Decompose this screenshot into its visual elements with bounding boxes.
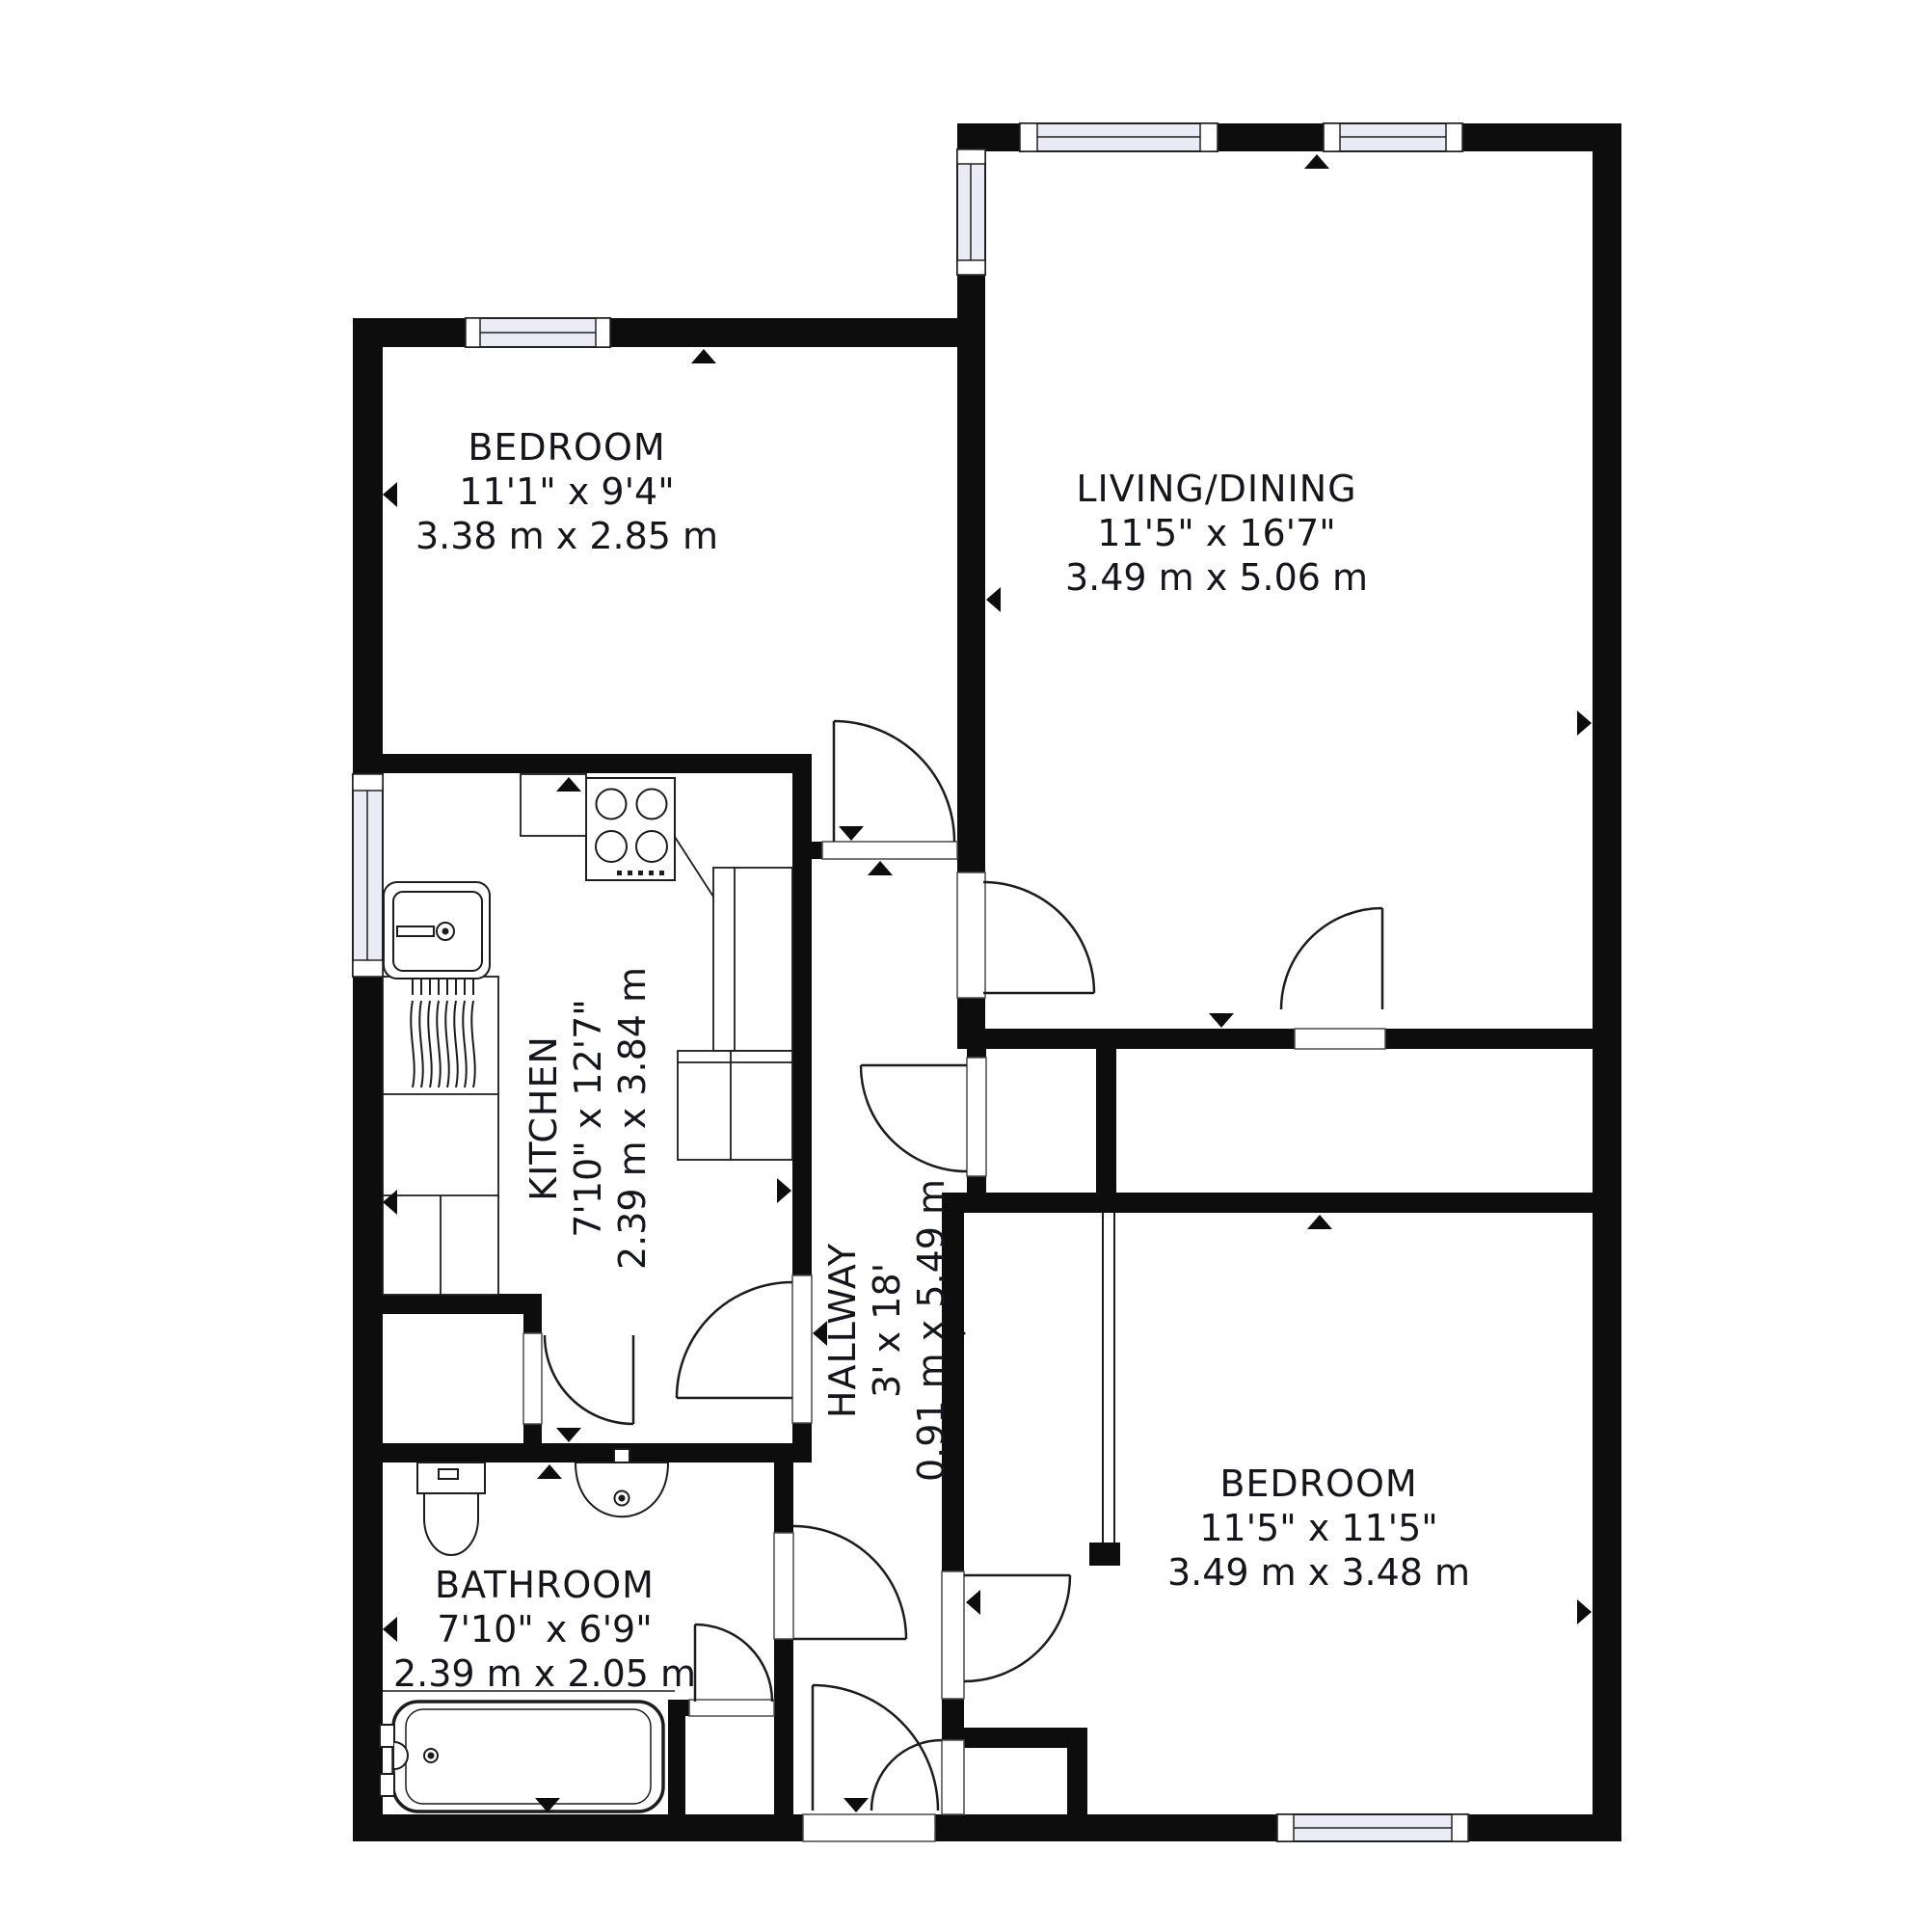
door-hall-storage-icon xyxy=(871,1740,942,1811)
door-hall-closet-icon xyxy=(861,1065,967,1171)
wall-bedroom2-top xyxy=(942,1193,1593,1213)
room-name: KITCHEN xyxy=(522,967,566,1270)
door-living-icon xyxy=(983,882,1094,993)
marker-left-icon xyxy=(966,1590,980,1615)
room-size-imperial: 11'1" x 9'4" xyxy=(415,470,718,514)
room-size-imperial: 7'10" x 6'9" xyxy=(393,1607,696,1651)
room-size-metric: 2.39 m x 3.84 m xyxy=(610,967,655,1270)
room-label-kitchen: KITCHEN 7'10" x 12'7" 2.39 m x 3.84 m xyxy=(522,967,655,1270)
marker-up-icon xyxy=(868,861,893,875)
marker-down-icon xyxy=(843,1798,869,1812)
door-kitchen-closet-icon xyxy=(545,1335,633,1424)
room-label-bathroom: BATHROOM 7'10" x 6'9" 2.39 m x 2.05 m xyxy=(393,1563,696,1696)
room-label-bedroom-2: BEDROOM 11'5" x 11'5" 3.49 m x 3.48 m xyxy=(1167,1462,1470,1595)
wall-closet-divider xyxy=(1096,1049,1116,1193)
door-living-closet-icon xyxy=(1281,908,1382,1009)
wall-hallway-left-lower-b xyxy=(774,1639,793,1814)
room-size-imperial: 7'10" x 12'7" xyxy=(566,967,610,1270)
doorway-bedroom1 xyxy=(822,842,957,859)
room-name: BEDROOM xyxy=(1167,1462,1470,1506)
door-front-entrance-icon xyxy=(813,1685,938,1811)
room-size-imperial: 11'5" x 16'7" xyxy=(1065,511,1368,555)
bathtub-icon xyxy=(380,1691,675,1811)
doorway-front-entrance xyxy=(803,1814,935,1841)
room-label-bedroom-1: BEDROOM 11'1" x 9'4" 3.38 m x 2.85 m xyxy=(415,425,718,558)
room-size-metric: 2.39 m x 2.05 m xyxy=(393,1651,696,1696)
wall-bedroom1-door-jamb-left xyxy=(812,842,822,859)
room-name: LIVING/DINING xyxy=(1065,467,1368,511)
room-name: BATHROOM xyxy=(393,1563,696,1607)
marker-down-icon xyxy=(556,1428,581,1442)
room-name: BEDROOM xyxy=(415,425,718,470)
marker-up-icon xyxy=(691,349,716,363)
wall-hallway-left-lower-a xyxy=(774,1462,793,1533)
wall-kitchen-closet-right-a xyxy=(523,1294,542,1333)
wall-living-bottom-left xyxy=(967,1029,1295,1049)
room-size-metric: 0.91 m x 5.49 m xyxy=(909,1179,953,1482)
doorway-living xyxy=(957,872,985,998)
doorway-kitchen-closet xyxy=(523,1333,542,1424)
wall-hallway-right-stub-b xyxy=(967,1176,986,1193)
stove-icon xyxy=(586,778,675,880)
room-label-living-dining: LIVING/DINING 11'5" x 16'7" 3.49 m x 5.0… xyxy=(1065,467,1368,600)
door-kitchen-icon xyxy=(677,1282,792,1398)
wall-exterior-left xyxy=(353,318,383,1841)
doorway-living-closet xyxy=(1295,1029,1385,1049)
window-living-left-icon xyxy=(957,149,985,275)
window-bedroom1-icon xyxy=(466,318,610,347)
wardrobe-icon xyxy=(1089,1213,1120,1566)
window-kitchen-icon xyxy=(353,774,383,977)
wall-kitchen-closet-top xyxy=(379,1294,542,1314)
door-bathroom-nook-icon xyxy=(695,1624,772,1702)
window-living-top-2-icon xyxy=(1324,123,1462,151)
room-label-hallway: HALLWAY 3' x 18' 0.91 m x 5.49 m xyxy=(820,1179,953,1482)
wall-hallway-right-stub-a xyxy=(967,1049,986,1058)
room-size-imperial: 11'5" x 11'5" xyxy=(1167,1506,1470,1550)
marker-up-icon xyxy=(1304,154,1329,169)
wall-bedroom1-top xyxy=(353,318,957,347)
wall-hallway-left-upper xyxy=(792,754,812,1275)
floor-plan-drawing xyxy=(0,0,1928,1932)
marker-up-icon xyxy=(537,1464,562,1479)
wall-bathroom-nook-left xyxy=(668,1700,685,1814)
door-bathroom-icon xyxy=(793,1526,906,1639)
wall-hall-closet-right xyxy=(1067,1748,1087,1814)
wall-hallway-right-lower-b xyxy=(942,1699,964,1740)
doorway-bedroom2 xyxy=(942,1571,964,1699)
marker-left-icon xyxy=(986,587,1001,612)
window-bedroom2-bottom-icon xyxy=(1277,1814,1468,1841)
floor-plan: BEDROOM 11'1" x 9'4" 3.38 m x 2.85 m LIV… xyxy=(0,0,1928,1932)
room-size-metric: 3.49 m x 3.48 m xyxy=(1167,1550,1470,1595)
wall-hallway-left-mid xyxy=(792,1423,812,1462)
marker-down-icon xyxy=(1209,1013,1234,1028)
doorway-hall-storage xyxy=(942,1740,964,1814)
wall-hall-closet-top xyxy=(964,1728,1087,1748)
room-size-imperial: 3' x 18' xyxy=(865,1179,909,1482)
wall-bedroom1-door-jamb-right xyxy=(957,842,967,859)
doorway-hall-closet xyxy=(967,1058,986,1176)
marker-right-icon xyxy=(1577,711,1592,736)
marker-right-icon xyxy=(777,1178,791,1203)
room-name: HALLWAY xyxy=(820,1179,865,1482)
wall-kitchen-closet-right-b xyxy=(523,1424,542,1443)
window-living-top-1-icon xyxy=(1020,123,1218,151)
wall-kitchen-top xyxy=(353,754,812,773)
toilet-icon xyxy=(417,1462,485,1555)
marker-left-icon xyxy=(383,482,397,507)
room-size-metric: 3.38 m x 2.85 m xyxy=(415,514,718,558)
room-size-metric: 3.49 m x 5.06 m xyxy=(1065,555,1368,600)
wall-living-bottom-right xyxy=(1385,1029,1593,1049)
wall-exterior-right xyxy=(1593,123,1621,1841)
door-bedroom1-icon xyxy=(834,721,954,842)
doorway-kitchen xyxy=(792,1275,812,1423)
sink-icon xyxy=(384,882,490,979)
marker-down-icon xyxy=(839,826,864,841)
doorway-bathroom xyxy=(774,1533,793,1639)
doorway-bathroom-nook xyxy=(689,1700,774,1716)
wall-bathroom-top xyxy=(353,1443,793,1462)
marker-right-icon xyxy=(1577,1599,1592,1624)
marker-up-icon xyxy=(1307,1215,1332,1229)
